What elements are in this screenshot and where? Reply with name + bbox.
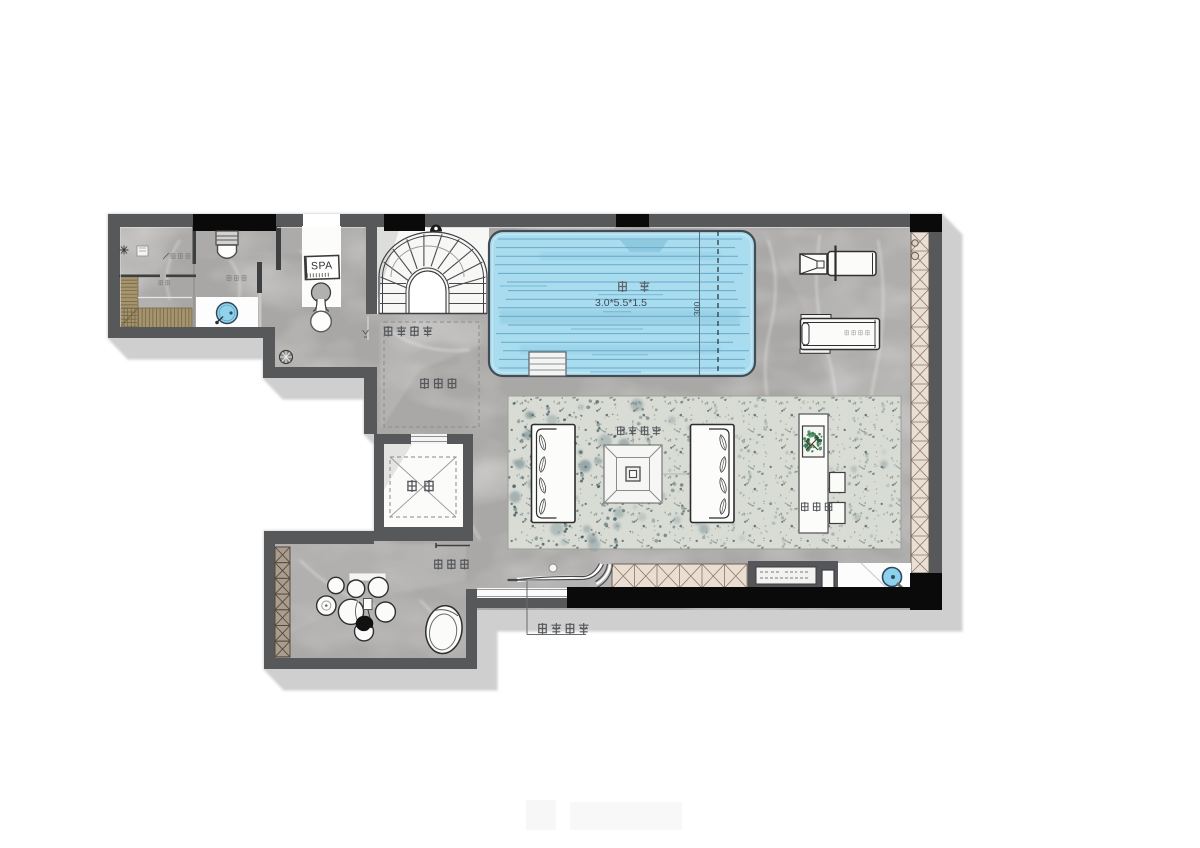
svg-text:3.0*5.5*1.5: 3.0*5.5*1.5 [595,297,647,309]
svg-text:SPA: SPA [311,260,333,273]
svg-text:300: 300 [692,302,702,316]
